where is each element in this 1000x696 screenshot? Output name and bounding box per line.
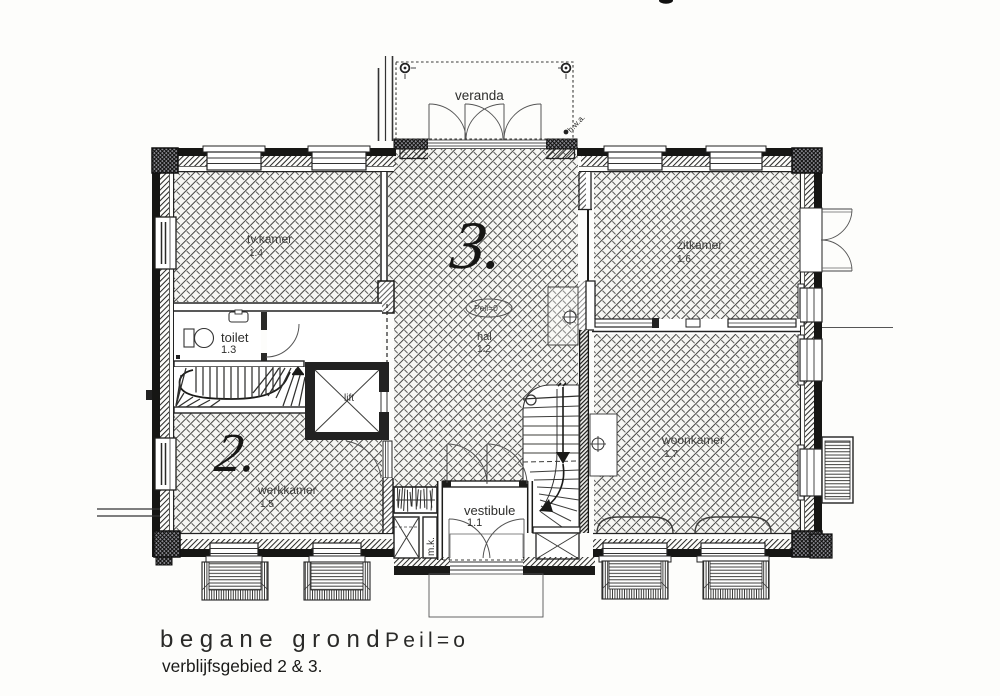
svg-text:2.: 2. bbox=[211, 422, 261, 483]
svg-text:veranda: veranda bbox=[455, 88, 504, 103]
svg-text:zitkamer: zitkamer bbox=[677, 238, 722, 252]
svg-text:1.2: 1.2 bbox=[477, 344, 491, 355]
svg-text:vestibule: vestibule bbox=[464, 503, 515, 518]
svg-text:3.: 3. bbox=[446, 207, 509, 283]
svg-text:Peil=0: Peil=0 bbox=[474, 303, 498, 313]
svg-text:1.6: 1.6 bbox=[677, 254, 691, 265]
svg-text:1.3: 1.3 bbox=[221, 344, 236, 356]
svg-text:tv.kamer: tv.kamer bbox=[247, 232, 292, 246]
svg-text:Peil=o: Peil=o bbox=[385, 629, 469, 652]
svg-text:1.4: 1.4 bbox=[249, 248, 263, 259]
svg-text:toilet: toilet bbox=[221, 330, 249, 345]
svg-text:verblijfsgebied 2 & 3.: verblijfsgebied 2 & 3. bbox=[162, 656, 322, 676]
svg-text:woonkamer: woonkamer bbox=[661, 433, 724, 447]
svg-text:1.7: 1.7 bbox=[664, 449, 678, 460]
svg-text:begane grond: begane grond bbox=[160, 626, 386, 653]
svg-text:hal: hal bbox=[477, 331, 492, 343]
svg-text:1.5: 1.5 bbox=[260, 499, 274, 510]
svg-text:1.1: 1.1 bbox=[467, 517, 482, 529]
svg-text:lift: lift bbox=[344, 393, 354, 404]
svg-text:m.k.: m.k. bbox=[426, 537, 437, 556]
svg-text:werkkamer: werkkamer bbox=[257, 483, 317, 497]
